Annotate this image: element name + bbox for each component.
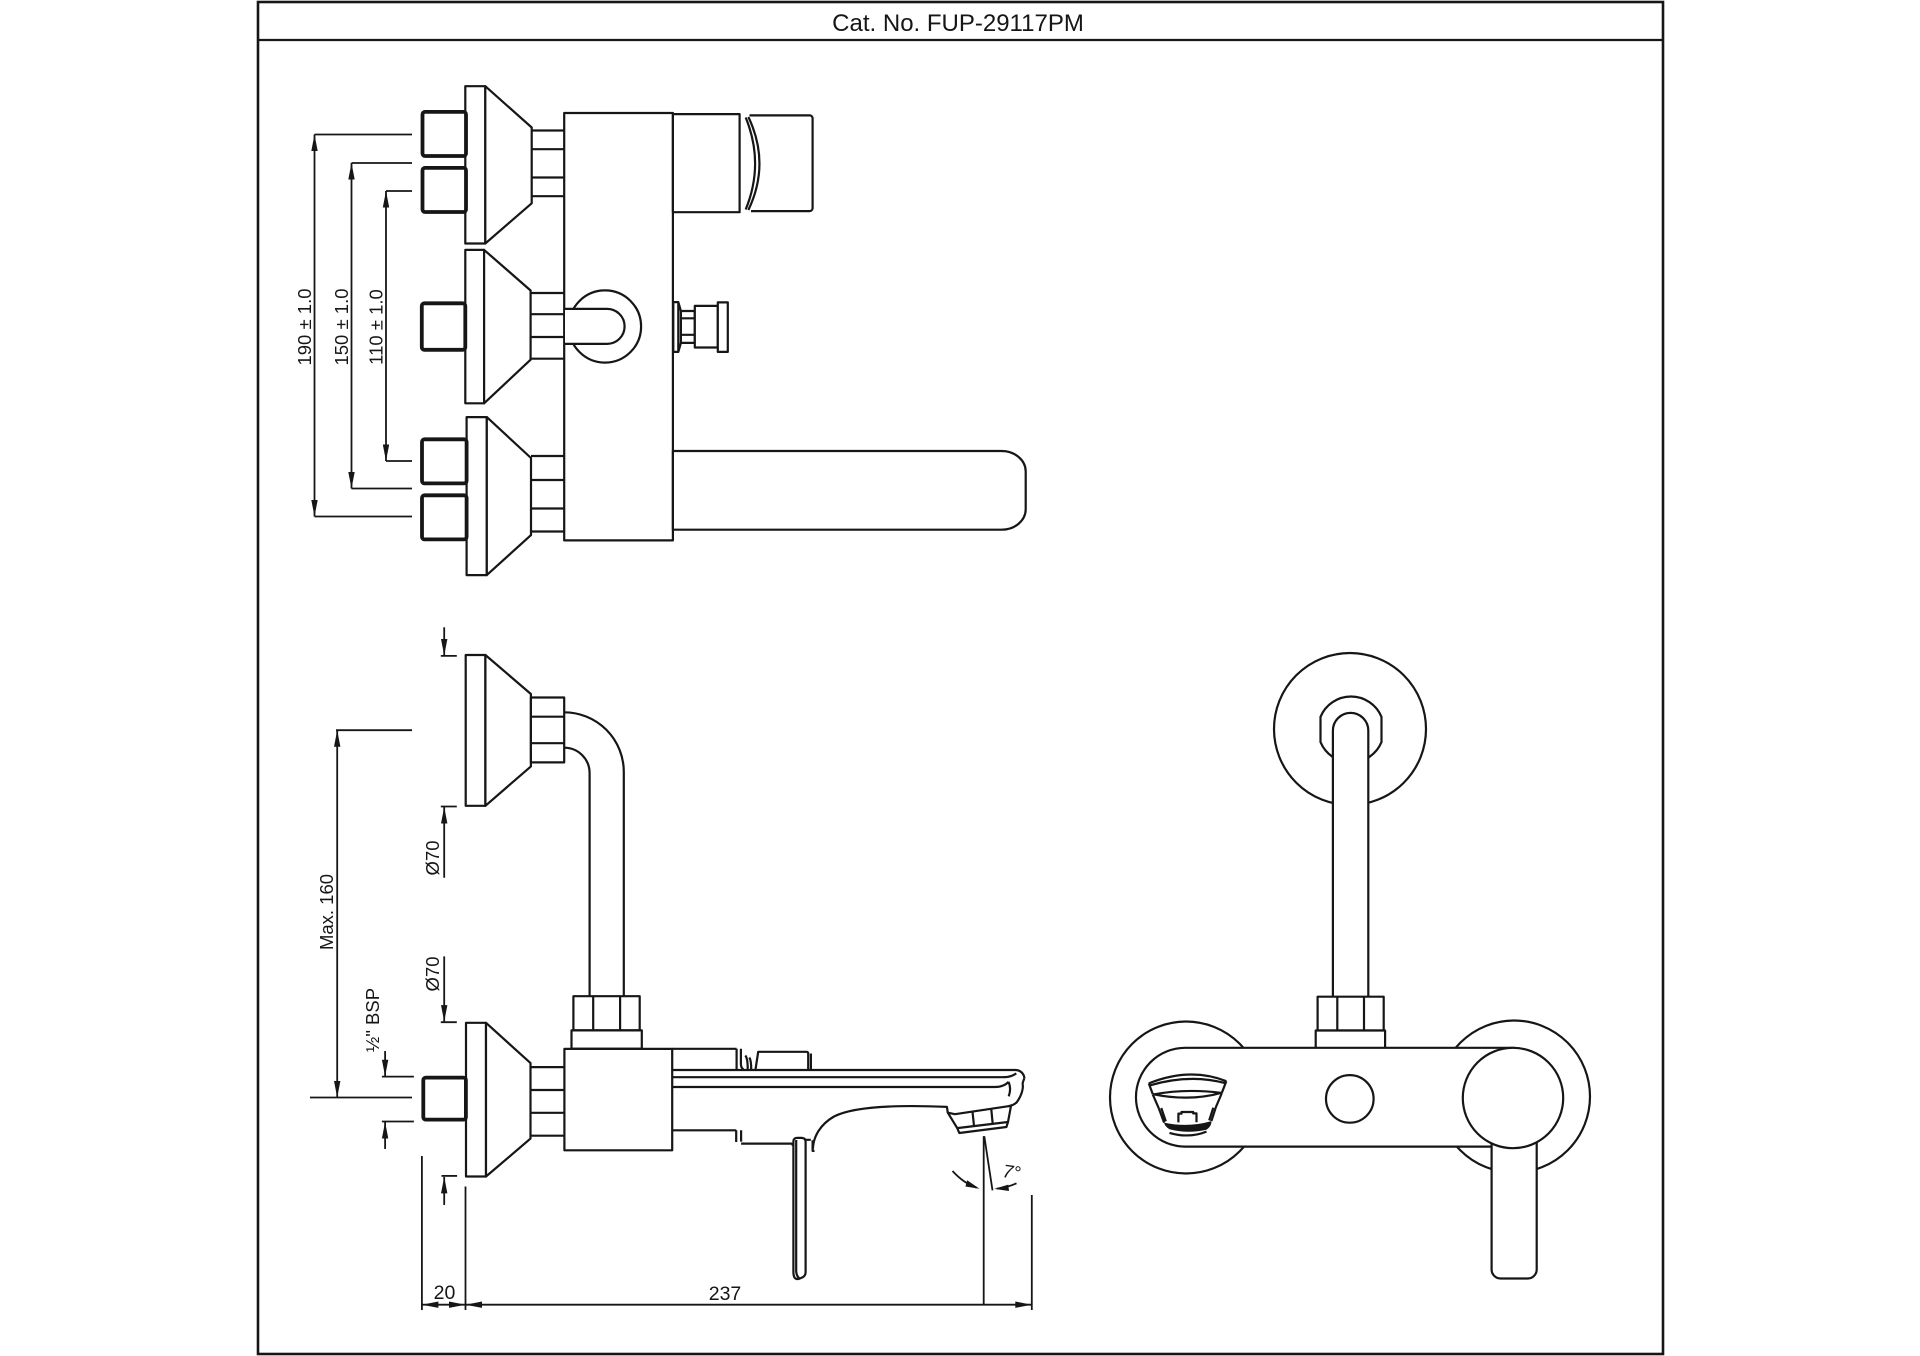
svg-text:Max. 160: Max. 160 [316,874,337,950]
svg-text:Cat. No. FUP-29117PM: Cat. No. FUP-29117PM [832,10,1084,37]
svg-text:237: 237 [709,1283,742,1305]
svg-text:Ø70: Ø70 [422,841,443,876]
svg-text:20: 20 [434,1282,456,1304]
svg-text:150 ± 1.0: 150 ± 1.0 [331,288,352,365]
svg-text:Ø70: Ø70 [422,957,443,992]
svg-text:110 ± 1.0: 110 ± 1.0 [366,289,387,365]
svg-text:½" BSP: ½" BSP [362,988,383,1052]
svg-text:190 ± 1.0: 190 ± 1.0 [294,288,315,365]
svg-text:7°: 7° [1001,1160,1021,1183]
